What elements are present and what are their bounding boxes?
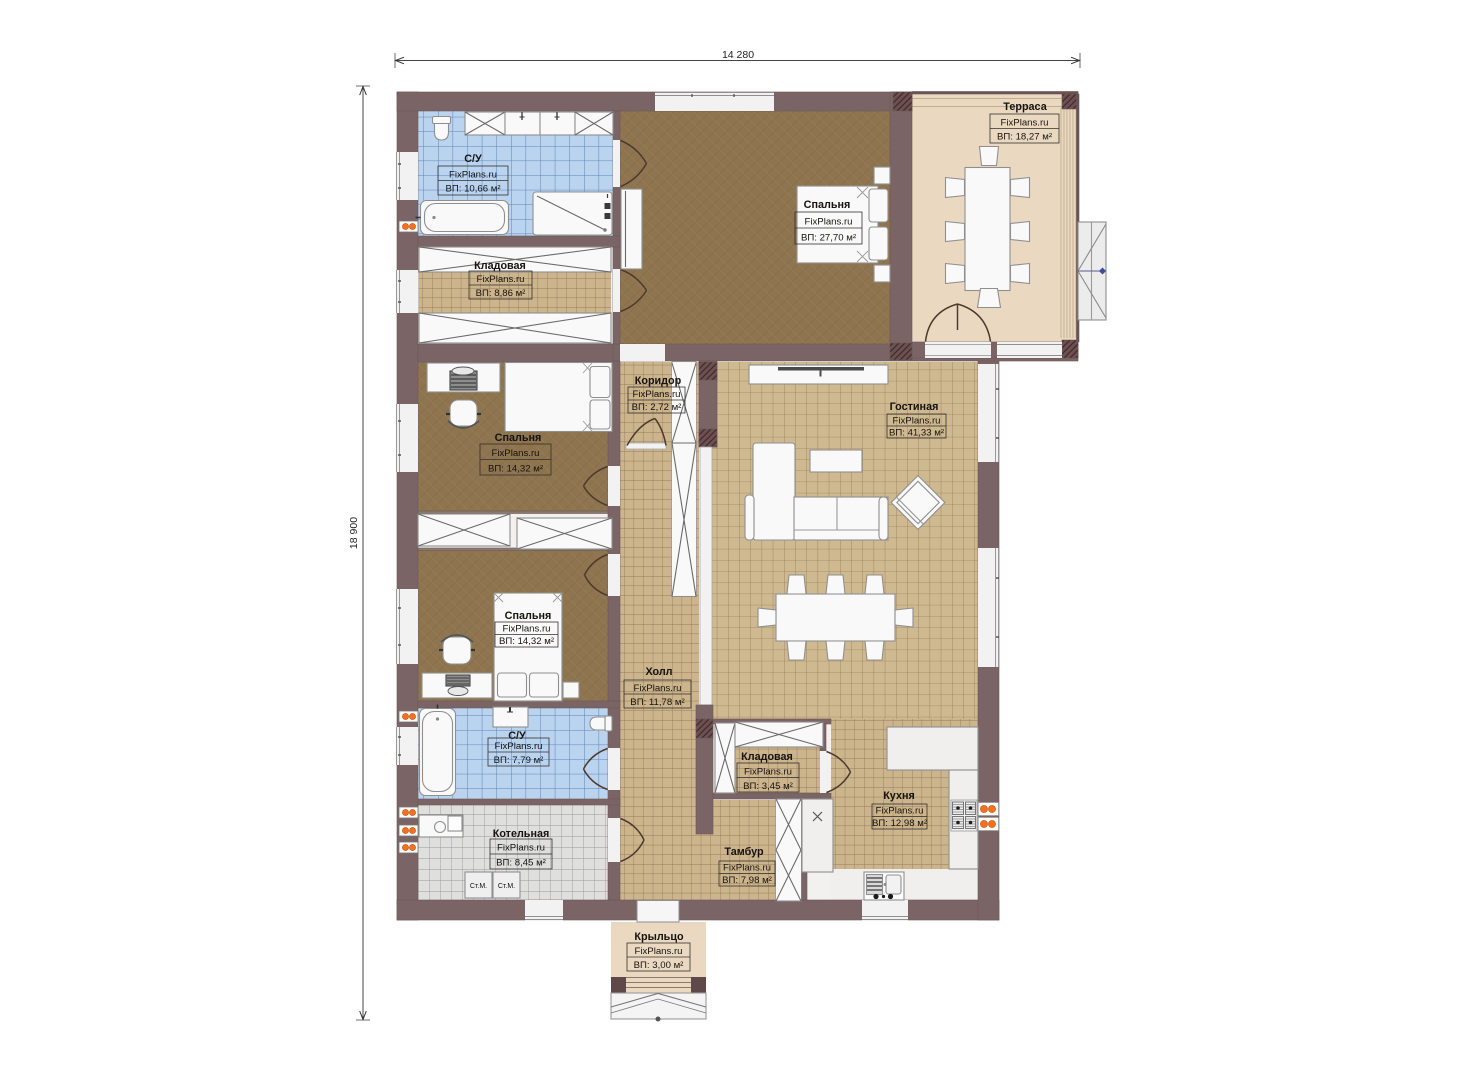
svg-text:Коридор: Коридор [635, 375, 682, 387]
svg-text:Ст.М.: Ст.М. [498, 883, 515, 890]
svg-text:ВП: 2,72 м²: ВП: 2,72 м² [632, 402, 683, 413]
svg-text:ВП: 18,27 м²: ВП: 18,27 м² [997, 132, 1053, 143]
svg-text:ВП: 14,32 м²: ВП: 14,32 м² [488, 464, 544, 475]
svg-text:ВП: 12,98 м²: ВП: 12,98 м² [872, 818, 928, 829]
svg-text:14 280: 14 280 [722, 49, 754, 61]
svg-text:FixPlans.ru: FixPlans.ru [477, 274, 525, 285]
svg-text:Кладовая: Кладовая [474, 260, 526, 272]
svg-text:FixPlans.ru: FixPlans.ru [805, 217, 853, 228]
svg-text:FixPlans.ru: FixPlans.ru [634, 683, 682, 694]
svg-text:FixPlans.ru: FixPlans.ru [497, 843, 545, 854]
svg-text:FixPlans.ru: FixPlans.ru [893, 416, 941, 427]
svg-text:FixPlans.ru: FixPlans.ru [492, 448, 540, 459]
svg-text:Спальня: Спальня [505, 610, 552, 622]
svg-text:ВП: 14,32 м²: ВП: 14,32 м² [499, 636, 555, 647]
svg-text:Терраса: Терраса [1003, 101, 1047, 113]
svg-text:ВП: 3,45 м²: ВП: 3,45 м² [743, 781, 794, 792]
svg-text:FixPlans.ru: FixPlans.ru [503, 624, 551, 635]
svg-text:ВП: 8,86 м²: ВП: 8,86 м² [476, 288, 527, 299]
svg-text:Спальня: Спальня [804, 199, 851, 211]
svg-text:FixPlans.ru: FixPlans.ru [723, 863, 771, 874]
svg-text:Кладовая: Кладовая [741, 751, 793, 763]
svg-text:Тамбур: Тамбур [724, 846, 764, 858]
svg-text:FixPlans.ru: FixPlans.ru [633, 389, 681, 400]
svg-text:FixPlans.ru: FixPlans.ru [495, 741, 543, 752]
svg-text:18 900: 18 900 [348, 517, 360, 549]
svg-text:Крыльцо: Крыльцо [634, 931, 684, 943]
svg-text:Спальня: Спальня [495, 432, 542, 444]
svg-text:FixPlans.ru: FixPlans.ru [876, 806, 924, 817]
svg-text:ВП: 7,79 м²: ВП: 7,79 м² [494, 755, 545, 766]
svg-text:С/У: С/У [464, 153, 482, 165]
svg-text:Кухня: Кухня [883, 790, 915, 802]
svg-text:Котельная: Котельная [493, 828, 550, 840]
svg-text:ВП: 27,70 м²: ВП: 27,70 м² [801, 233, 857, 244]
svg-text:ВП: 41,33 м²: ВП: 41,33 м² [889, 428, 945, 439]
svg-text:ВП: 7,98 м²: ВП: 7,98 м² [722, 875, 773, 886]
svg-text:Холл: Холл [645, 666, 672, 678]
svg-text:FixPlans.ru: FixPlans.ru [1001, 118, 1049, 129]
svg-text:ВП: 3,00 м²: ВП: 3,00 м² [634, 960, 685, 971]
svg-text:ВП: 8,45 м²: ВП: 8,45 м² [496, 858, 547, 869]
svg-text:ВП: 10,66 м²: ВП: 10,66 м² [445, 184, 501, 195]
svg-text:FixPlans.ru: FixPlans.ru [635, 946, 683, 957]
svg-text:FixPlans.ru: FixPlans.ru [744, 767, 792, 778]
svg-text:FixPlans.ru: FixPlans.ru [449, 170, 497, 181]
svg-text:Гостиная: Гостиная [890, 401, 939, 413]
svg-text:ВП: 11,78 м²: ВП: 11,78 м² [630, 697, 685, 708]
svg-text:Ст.М.: Ст.М. [470, 883, 487, 890]
